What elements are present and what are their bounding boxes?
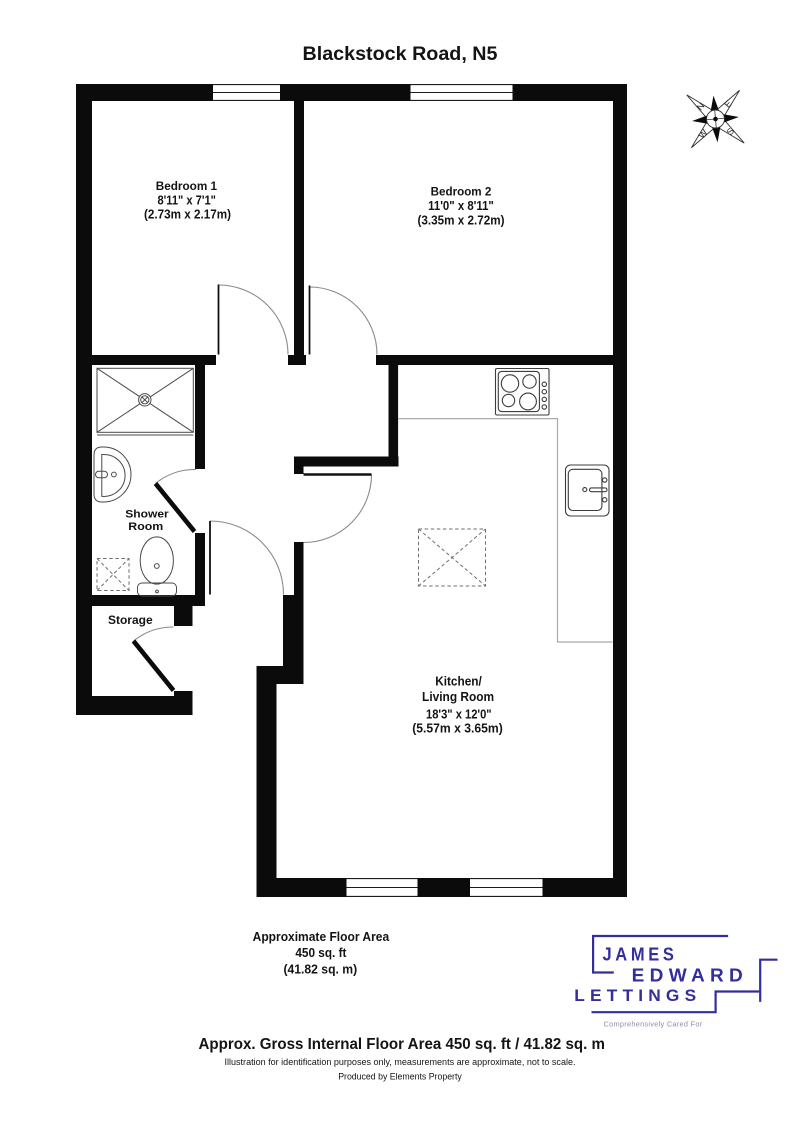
svg-text:(5.57m x 3.65m): (5.57m x 3.65m) — [412, 720, 503, 735]
svg-text:Shower: Shower — [125, 508, 169, 520]
svg-text:(2.73m x 2.17m): (2.73m x 2.17m) — [144, 207, 231, 222]
svg-text:Comprehensively Cared For: Comprehensively Cared For — [604, 1020, 703, 1029]
svg-text:Produced by Elements Property: Produced by Elements Property — [338, 1072, 462, 1083]
svg-text:Kitchen/: Kitchen/ — [435, 674, 482, 689]
svg-text:(3.35m x 2.72m): (3.35m x 2.72m) — [418, 212, 505, 227]
svg-text:Approx. Gross Internal Floor A: Approx. Gross Internal Floor Area 450 sq… — [199, 1036, 605, 1053]
svg-text:Bedroom 1: Bedroom 1 — [156, 179, 217, 193]
svg-text:8'11" x 7'1": 8'11" x 7'1" — [157, 192, 216, 207]
svg-text:Illustration for identificatio: Illustration for identification purposes… — [225, 1057, 576, 1068]
svg-text:11'0" x 8'11": 11'0" x 8'11" — [428, 198, 494, 213]
svg-text:18'3" x 12'0": 18'3" x 12'0" — [426, 707, 492, 722]
svg-text:Room: Room — [128, 521, 163, 533]
svg-text:Living Room: Living Room — [422, 689, 494, 704]
svg-text:Approximate Floor Area: Approximate Floor Area — [253, 929, 390, 944]
svg-text:450 sq. ft: 450 sq. ft — [295, 945, 347, 960]
svg-text:LETTINGS: LETTINGS — [574, 986, 701, 1005]
svg-text:(41.82 sq. m): (41.82 sq. m) — [283, 961, 357, 976]
svg-text:EDWARD: EDWARD — [632, 966, 748, 986]
svg-text:Blackstock Road, N5: Blackstock Road, N5 — [303, 43, 498, 65]
svg-text:JAMES: JAMES — [603, 945, 678, 965]
svg-text:Storage: Storage — [108, 613, 153, 627]
svg-text:Bedroom 2: Bedroom 2 — [431, 185, 492, 199]
